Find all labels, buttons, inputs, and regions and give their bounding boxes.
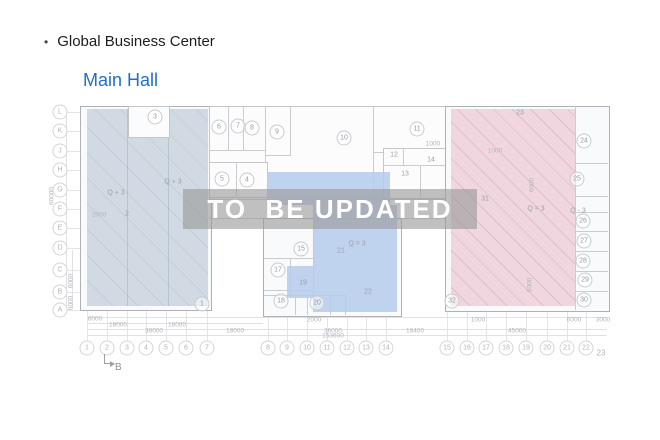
grid-row-line bbox=[66, 170, 80, 171]
room-number: 11 bbox=[410, 122, 425, 137]
grid-col-line bbox=[506, 311, 507, 341]
grid-col-label: 14 bbox=[379, 341, 394, 356]
wall-line bbox=[228, 106, 229, 150]
wall-line bbox=[575, 291, 608, 292]
grid-col-line bbox=[526, 311, 527, 341]
room-number: 8 bbox=[245, 121, 260, 136]
grid-col-label: 20 bbox=[540, 341, 555, 356]
grid-col-line bbox=[127, 311, 128, 341]
grid-col-label: 10 bbox=[300, 341, 315, 356]
grid-row-label: K bbox=[53, 124, 68, 139]
grid-col-label: 16 bbox=[460, 341, 475, 356]
section-marker-b: B bbox=[98, 352, 128, 378]
grid-col-label: 22 bbox=[579, 341, 594, 356]
dimension-line bbox=[88, 329, 607, 330]
dimension-label: 18000 bbox=[168, 322, 186, 329]
room-annotation: 31 bbox=[481, 196, 489, 203]
room-annotation: 2 bbox=[125, 211, 129, 218]
wall-line bbox=[575, 231, 608, 232]
dimension-label: 6000 bbox=[527, 278, 534, 292]
room-annotation: Q = 3 bbox=[348, 241, 365, 248]
room-number: 5 bbox=[215, 172, 230, 187]
room-annotation: Q + 3 bbox=[164, 179, 181, 186]
wall-line bbox=[575, 196, 608, 197]
room-number: 1 bbox=[195, 297, 210, 312]
grid-row-label: L bbox=[53, 105, 68, 120]
dimension-label: 36000 bbox=[145, 328, 163, 335]
dimension-line bbox=[88, 335, 607, 336]
grid-col-line bbox=[207, 311, 208, 341]
room-annotation: 13 bbox=[401, 171, 409, 178]
dimension-label: 6000 bbox=[88, 316, 102, 323]
grid-row-line bbox=[66, 228, 80, 229]
grid-row-label: A bbox=[53, 303, 68, 318]
wall-line bbox=[209, 150, 265, 151]
grid-col-label: 5 bbox=[159, 341, 174, 356]
grid-col-label: 19 bbox=[519, 341, 534, 356]
grid-col-label: 12 bbox=[340, 341, 355, 356]
dimension-label: 6000 bbox=[529, 178, 536, 192]
room-number: 27 bbox=[577, 234, 592, 249]
wall-line bbox=[383, 165, 447, 166]
wall-line bbox=[307, 295, 308, 315]
dimension-label: 18400 bbox=[406, 328, 424, 335]
room-number: 6 bbox=[212, 120, 227, 135]
wall-line bbox=[295, 295, 296, 315]
grid-row-line bbox=[66, 190, 80, 191]
grid-row-label: F bbox=[53, 202, 68, 217]
room-annotation: 12 bbox=[390, 152, 398, 159]
grid-col-line bbox=[166, 311, 167, 341]
dimension-label: 6000 bbox=[68, 274, 75, 288]
room-number: 7 bbox=[231, 119, 246, 134]
room-number: 9 bbox=[270, 125, 285, 140]
wall-line bbox=[127, 109, 128, 306]
grid-col-line bbox=[146, 311, 147, 341]
room-number: 3 bbox=[148, 110, 163, 125]
wall-line bbox=[290, 106, 291, 156]
wall-line bbox=[575, 163, 608, 164]
grid-col-line bbox=[107, 311, 108, 341]
grid-col-label: 6 bbox=[179, 341, 194, 356]
room-annotation: 23 bbox=[516, 110, 524, 117]
grid-row-label: D bbox=[53, 241, 68, 256]
room-number: 29 bbox=[578, 273, 593, 288]
room-annotation: 14 bbox=[427, 157, 435, 164]
wall-line bbox=[265, 155, 291, 156]
grid-row-line bbox=[66, 209, 80, 210]
wall-line bbox=[168, 109, 169, 306]
grid-col-label: 11 bbox=[320, 341, 335, 356]
room-number: 10 bbox=[337, 131, 352, 146]
dimension-label: 1000 bbox=[426, 141, 440, 148]
dimension-label: 1000 bbox=[488, 148, 502, 155]
grid-col-label: 23 bbox=[597, 349, 606, 358]
grid-row-line bbox=[66, 270, 80, 271]
grid-row-label: J bbox=[53, 144, 68, 159]
watermark: TO BE UPDATED bbox=[183, 189, 477, 229]
grid-col-line bbox=[447, 311, 448, 341]
slide: • Global Business Center Main Hall bbox=[0, 0, 660, 440]
room-number: 15 bbox=[294, 242, 309, 257]
grid-col-label: 15 bbox=[440, 341, 455, 356]
dimension-label: 45000 bbox=[508, 328, 526, 335]
room-annotation: Q = 3 bbox=[527, 206, 544, 213]
grid-row-label: B bbox=[53, 285, 68, 300]
grid-row-line bbox=[66, 151, 80, 152]
grid-row-label: G bbox=[53, 183, 68, 198]
grid-row-label: C bbox=[53, 263, 68, 278]
grid-row-label: E bbox=[53, 221, 68, 236]
room-number: 30 bbox=[577, 293, 592, 308]
grid-col-line bbox=[467, 311, 468, 341]
grid-col-label: 17 bbox=[479, 341, 494, 356]
grid-col-label: 8 bbox=[261, 341, 276, 356]
room-number: 17 bbox=[271, 263, 286, 278]
grid-col-label: 21 bbox=[560, 341, 575, 356]
marker-label: B bbox=[115, 362, 122, 373]
grid-col-line bbox=[547, 311, 548, 341]
grid-col-line bbox=[486, 311, 487, 341]
grid-col-label: 1 bbox=[80, 341, 95, 356]
wall-line bbox=[264, 258, 314, 259]
dimension-label: 1000 bbox=[471, 317, 485, 324]
dimension-label: 18000 bbox=[109, 322, 127, 329]
grid-col-label: 9 bbox=[280, 341, 295, 356]
room-number: 20 bbox=[310, 296, 325, 311]
dimension-label: 18000 bbox=[226, 328, 244, 335]
dimension-label: 2000 bbox=[307, 317, 321, 324]
room-annotation: Q - 3 bbox=[570, 208, 586, 215]
floor-plan: 6000200010006000300018000180003600018000… bbox=[0, 0, 660, 440]
room-number: 25 bbox=[570, 172, 585, 187]
wall-line bbox=[575, 271, 608, 272]
room-annotation: Q + 3 bbox=[107, 190, 124, 197]
room-annotation: 22 bbox=[364, 289, 372, 296]
room-number: 18 bbox=[274, 294, 289, 309]
room-number: 24 bbox=[577, 134, 592, 149]
grid-col-label: 7 bbox=[200, 341, 215, 356]
room-annotation: 21 bbox=[337, 248, 345, 255]
room-number: 4 bbox=[240, 173, 255, 188]
dimension-label: 6000 bbox=[68, 296, 75, 310]
wall-line bbox=[575, 251, 608, 252]
grid-row-label: H bbox=[53, 163, 68, 178]
dimension-label: 6000 bbox=[567, 317, 581, 324]
room-annotation: 19 bbox=[299, 280, 307, 287]
grid-col-label: 13 bbox=[359, 341, 374, 356]
grid-row-line bbox=[66, 248, 80, 249]
grid-col-line bbox=[567, 311, 568, 341]
grid-col-label: 18 bbox=[499, 341, 514, 356]
dimension-line bbox=[88, 317, 607, 318]
grid-row-line bbox=[66, 292, 80, 293]
grid-col-label: 4 bbox=[139, 341, 154, 356]
dimension-label: 2000 bbox=[92, 212, 106, 219]
room-number: 32 bbox=[445, 294, 460, 309]
room-number: 26 bbox=[576, 214, 591, 229]
grid-row-line bbox=[66, 112, 80, 113]
room-number: 28 bbox=[576, 254, 591, 269]
wall-line bbox=[403, 148, 404, 166]
grid-col-line bbox=[186, 311, 187, 341]
grid-row-line bbox=[66, 131, 80, 132]
grid-col-line bbox=[586, 311, 587, 341]
dimension-label: 153600 bbox=[322, 333, 344, 340]
dimension-label: 3000 bbox=[596, 317, 610, 324]
